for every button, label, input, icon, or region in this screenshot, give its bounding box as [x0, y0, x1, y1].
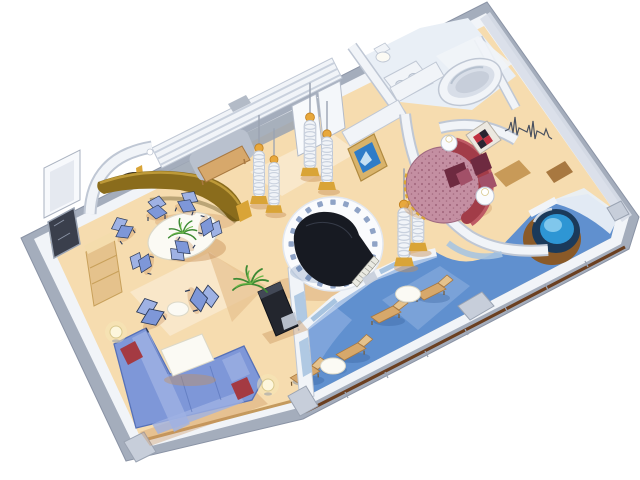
hot-tub-highlight	[544, 218, 562, 232]
nightstand	[476, 187, 494, 205]
suite-floorplan	[0, 0, 640, 480]
floor-lamp	[105, 321, 127, 343]
side-table	[168, 302, 189, 316]
floor-lamp	[257, 374, 279, 396]
coffee-table-shadow	[164, 374, 216, 386]
nightstand	[441, 135, 457, 151]
wall-downlight	[147, 149, 153, 155]
floorplan-stage	[0, 0, 640, 480]
